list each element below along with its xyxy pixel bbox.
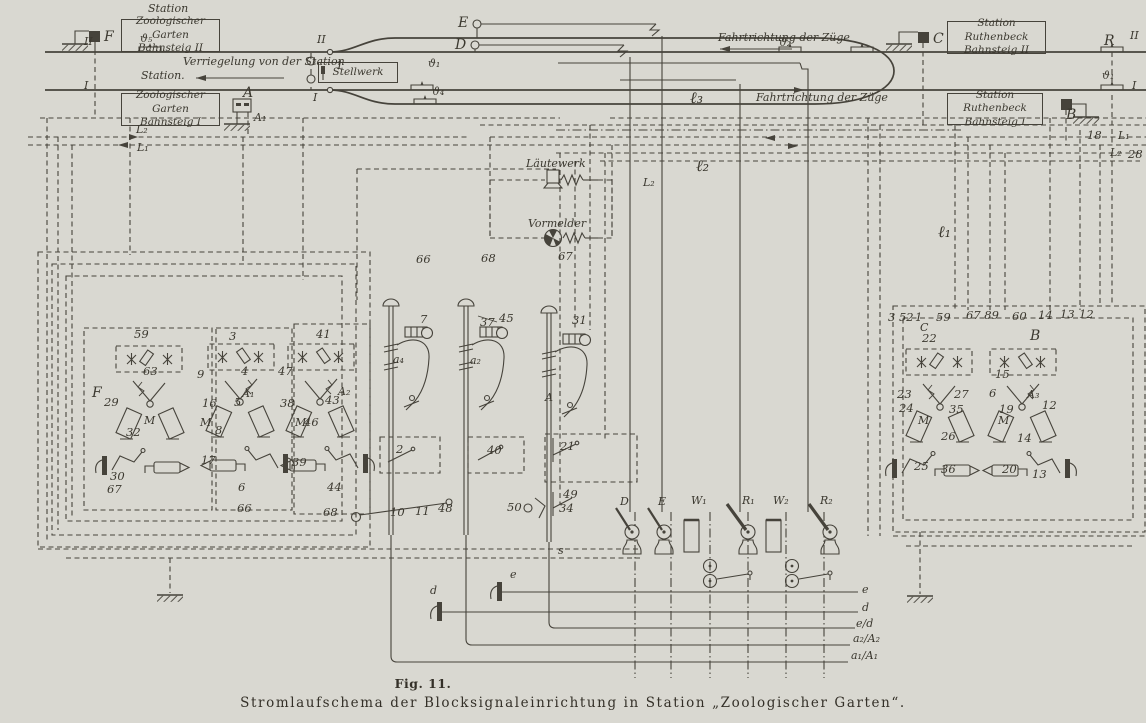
relay-cluster-a2 (281, 344, 374, 473)
block-instrument-d (616, 508, 641, 554)
block-instrument-e (648, 508, 673, 554)
signal-b (1061, 99, 1099, 145)
relay-cluster-b (983, 349, 1076, 478)
signal-lever-3 (541, 306, 591, 542)
figure-number: Fig. 11. (0, 676, 996, 691)
loop-wires-e-d (471, 20, 808, 80)
block-instrument-r1 (727, 504, 757, 554)
ground-bottom-right (907, 596, 933, 603)
stellwerk-flag-icon (321, 66, 325, 80)
annunciator-fan-icon (490, 180, 612, 247)
bell-icon (490, 170, 612, 188)
terminal-loop (307, 38, 894, 104)
direction-arrows (118, 46, 804, 149)
dash-dot-wires (556, 130, 962, 678)
line-wires (630, 36, 808, 512)
block-instrument-w1 (684, 520, 699, 552)
ground-bottom-left (157, 595, 183, 602)
block-instrument-w2 (766, 520, 781, 552)
figure-caption: Stromlaufschema der Blocksignaleinrichtu… (0, 695, 1146, 711)
circuit-diagram-art (0, 0, 1146, 723)
signal-lever-2 (458, 299, 508, 535)
signal-f (62, 31, 100, 118)
relay-cluster-f (96, 346, 189, 475)
dashed-wire-network (28, 52, 1146, 594)
signal-lever-1 (383, 299, 433, 535)
block-bell-contacts (704, 560, 833, 588)
relay-cluster-a1 (201, 344, 294, 473)
relay-cluster-c (886, 349, 979, 478)
figure-page: Zoologischer GartenBahnsteig IIZoologisc… (0, 0, 1146, 723)
